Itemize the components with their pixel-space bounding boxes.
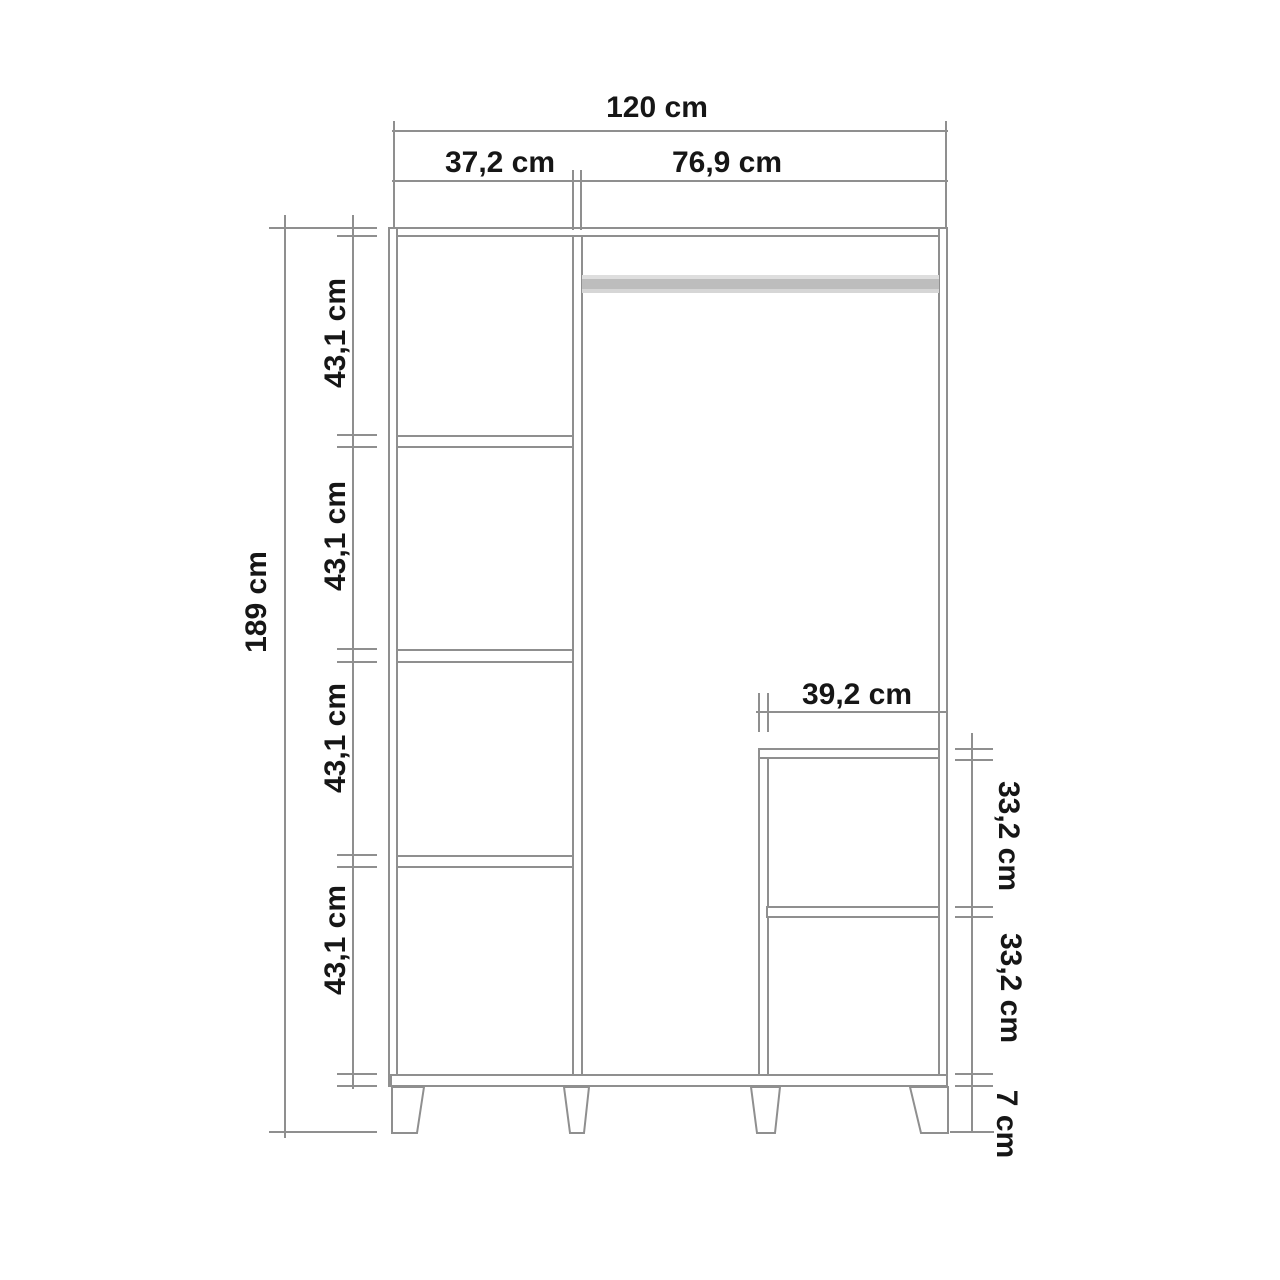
- left-shelf-2: [396, 649, 574, 663]
- dim-label-main-width: 76,9 cm: [672, 148, 782, 178]
- tick-r-legs-bottom: [950, 1131, 994, 1133]
- dim-inner-width-line: [756, 711, 947, 713]
- tick-r-shelf2-a: [955, 906, 993, 908]
- dim-column-widths-line: [392, 180, 948, 182]
- dim-label-shelf-height-4: 43,1 cm: [321, 885, 351, 995]
- dim-label-shelf-height-2: 43,1 cm: [321, 481, 351, 591]
- inner-shelf-1: [758, 748, 940, 759]
- tick-bottom-shared: [269, 1131, 377, 1133]
- dim-label-left-width: 37,2 cm: [445, 148, 555, 178]
- tick-shelf1-a: [337, 434, 377, 436]
- tick-bottom-a: [337, 1073, 377, 1075]
- tick-top-shared: [269, 227, 377, 229]
- hanging-rod: [582, 275, 939, 293]
- right-side-panel: [938, 227, 948, 1087]
- tick-r-bottom-a: [955, 1073, 993, 1075]
- wardrobe-dimension-diagram: 120 cm 37,2 cm 76,9 cm 189 cm 43,1 cm 43…: [0, 0, 1280, 1280]
- dim-total-width-line: [392, 130, 948, 132]
- dim-ext-left: [393, 121, 395, 227]
- tick-r-bottom-b: [955, 1085, 993, 1087]
- dim-inner-tick-b: [767, 693, 769, 732]
- dim-label-total-width: 120 cm: [606, 93, 708, 123]
- dim-shelves-line: [352, 215, 354, 1089]
- leg-mid-right: [751, 1087, 780, 1133]
- top-panel: [390, 227, 948, 237]
- dim-total-height-line: [284, 215, 286, 1138]
- tick-r-shelf2-b: [955, 916, 993, 918]
- tick-r-shelf1-a: [955, 748, 993, 750]
- leg-far-left: [392, 1087, 424, 1133]
- tick-bottom-b: [337, 1085, 377, 1087]
- dim-label-total-height: 189 cm: [242, 551, 272, 653]
- dim-inner-tick-a: [758, 693, 760, 732]
- dim-ext-right: [945, 121, 947, 227]
- tick-shelf2-a: [337, 648, 377, 650]
- dim-label-leg-height: 7 cm: [991, 1090, 1021, 1158]
- tick-shelf1-b: [337, 446, 377, 448]
- dim-label-right-shelf-1: 33,2 cm: [993, 781, 1023, 891]
- dim-label-inner-width: 39,2 cm: [802, 680, 912, 710]
- leg-mid-left: [564, 1087, 589, 1133]
- left-shelf-1: [396, 435, 574, 448]
- dim-partition-tick-right: [580, 170, 582, 230]
- tick-shelf3-b: [337, 866, 377, 868]
- dim-label-shelf-height-1: 43,1 cm: [321, 278, 351, 388]
- wardrobe-legs: [385, 1085, 955, 1140]
- dim-partition-tick-left: [572, 170, 574, 230]
- dim-label-shelf-height-3: 43,1 cm: [321, 683, 351, 793]
- tick-shelf2-b: [337, 661, 377, 663]
- tick-r-shelf1-b: [955, 759, 993, 761]
- inner-shelf-2: [766, 906, 940, 918]
- left-shelf-3: [396, 855, 574, 868]
- leg-far-right: [910, 1087, 948, 1133]
- dim-label-right-shelf-2: 33,2 cm: [995, 933, 1025, 1043]
- tick-top-inner: [337, 235, 377, 237]
- tick-shelf3-a: [337, 854, 377, 856]
